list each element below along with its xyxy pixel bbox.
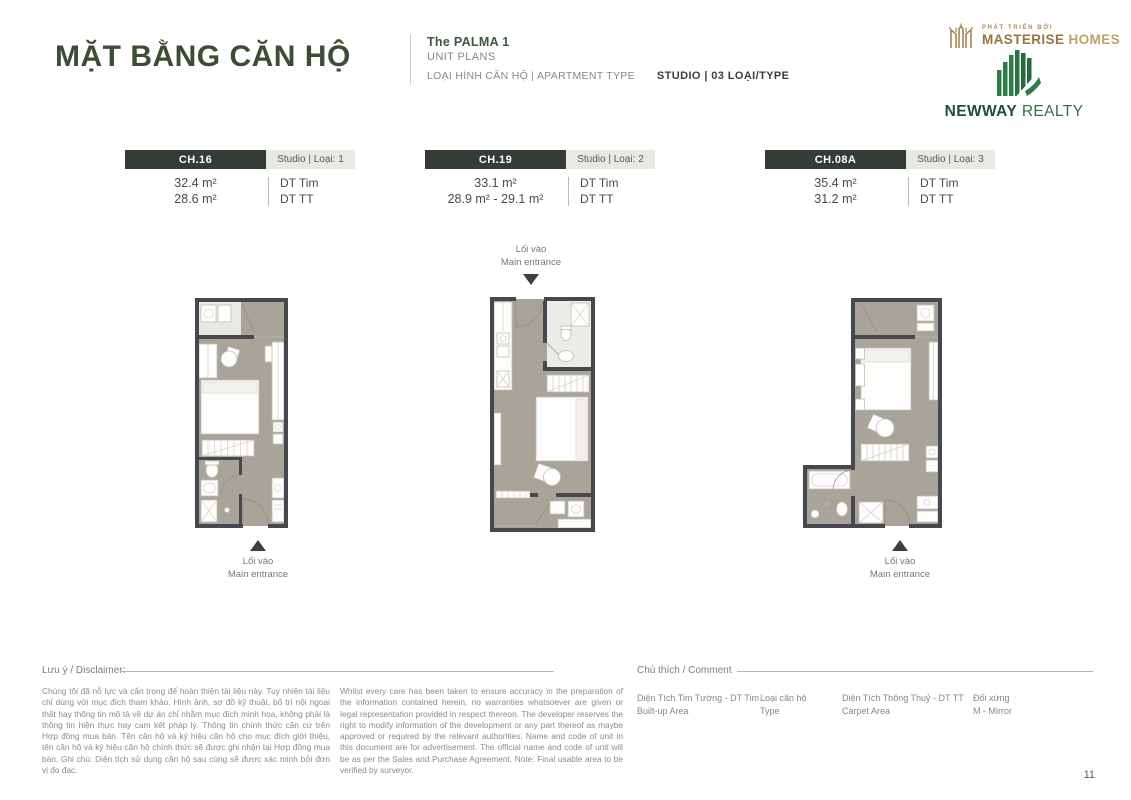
- area-tim-value: 35.4 m²: [765, 175, 906, 191]
- unit-type-ch16: Studio | Loại: 1: [266, 150, 355, 169]
- legend-line2: M - Mirror: [973, 705, 1012, 718]
- unit-code-ch19: CH.19: [425, 150, 566, 169]
- disclaimer-label: Lưu ý / Disclaimer:: [42, 665, 125, 676]
- area-tt-value: 31.2 m²: [765, 191, 906, 207]
- legend-line1: Diện Tích Tim Tường - DT Tim: [637, 692, 759, 705]
- legend-line1: Diện Tích Thông Thuỷ - DT TT: [842, 692, 964, 705]
- newway-logo: NEWWAY REALTY: [940, 50, 1088, 121]
- project-block: The PALMA 1 UNIT PLANS LOẠI HÌNH CĂN HỘ …: [427, 35, 789, 84]
- legend-item-built-up: Diện Tích Tim Tường - DT Tim Built-up Ar…: [637, 692, 759, 718]
- page-title: MẶT BẰNG CĂN HỘ: [55, 40, 351, 74]
- legend-line2: Carpet Area: [842, 705, 964, 718]
- legend-rule: [737, 671, 1093, 672]
- entrance-ch19: Lối vào Main entrance: [491, 243, 571, 285]
- entrance-arrow-icon: [523, 274, 539, 285]
- unit-dt-labels-ch19: DT Tim DT TT: [580, 175, 618, 207]
- legend-label: Chú thích / Comment: [637, 665, 731, 676]
- unit-code-ch16: CH.16: [125, 150, 266, 169]
- dt-tt-label: DT TT: [580, 191, 618, 207]
- dt-tim-label: DT Tim: [280, 175, 318, 191]
- legend-line1: Đối xứng: [973, 692, 1012, 705]
- entrance-label-en: Main entrance: [218, 568, 298, 581]
- floor-plan-ch19: [490, 297, 595, 532]
- legend-item-carpet: Diện Tích Thông Thuỷ - DT TT Carpet Area: [842, 692, 964, 718]
- newway-logo-icon: [983, 50, 1045, 100]
- area-tim-value: 32.4 m²: [125, 175, 266, 191]
- masterise-tagline: PHÁT TRIỂN BỞI: [982, 25, 1120, 31]
- entrance-label-vi: Lối vào: [491, 243, 571, 256]
- entrance-label-en: Main entrance: [491, 256, 571, 269]
- disclaimer-text-vi: Chúng tôi đã nỗ lực và cẩn trọng để hoàn…: [42, 686, 330, 776]
- legend-line2: Built-up Area: [637, 705, 759, 718]
- dt-tt-label: DT TT: [280, 191, 318, 207]
- newway-suffix: REALTY: [1022, 103, 1084, 120]
- unit-type-ch19: Studio | Loại: 2: [566, 150, 655, 169]
- entrance-arrow-icon: [892, 540, 908, 551]
- unit-type-ch08a: Studio | Loại: 3: [906, 150, 995, 169]
- legend-item-mirror: Đối xứng M - Mirror: [973, 692, 1012, 718]
- disclaimer-text-en: Whilst every care has been taken to ensu…: [340, 686, 623, 776]
- unit-dt-labels-ch08a: DT Tim DT TT: [920, 175, 958, 207]
- dt-tim-label: DT Tim: [920, 175, 958, 191]
- newway-name: NEWWAY: [945, 103, 1017, 120]
- entrance-label-vi: Lối vào: [218, 555, 298, 568]
- masterise-suffix: HOMES: [1069, 32, 1121, 47]
- entrance-label-vi: Lối vào: [860, 555, 940, 568]
- floor-plan-ch16: [195, 298, 288, 528]
- area-divider: [568, 177, 569, 206]
- project-subtitle: UNIT PLANS: [427, 51, 789, 63]
- masterise-name: MASTERISE: [982, 32, 1064, 47]
- entrance-arrow-icon: [250, 540, 266, 551]
- unit-code-ch08a: CH.08A: [765, 150, 906, 169]
- masterise-logo: PHÁT TRIỂN BỞI MASTERISE HOMES: [948, 23, 1120, 49]
- project-name: The PALMA 1: [427, 35, 789, 49]
- unit-dt-labels-ch16: DT Tim DT TT: [280, 175, 318, 207]
- legend-item-type: Loại căn hộ Type: [760, 692, 807, 718]
- legend-line1: Loại căn hộ: [760, 692, 807, 705]
- legend-line2: Type: [760, 705, 807, 718]
- entrance-label-en: Main entrance: [860, 568, 940, 581]
- header-divider: [410, 34, 411, 84]
- masterise-logo-icon: [948, 23, 974, 49]
- unit-areas-ch16: 32.4 m² 28.6 m²: [125, 175, 266, 207]
- unit-areas-ch19: 33.1 m² 28.9 m² - 29.1 m²: [425, 175, 566, 207]
- area-divider: [268, 177, 269, 206]
- page-number: 11: [1065, 769, 1095, 781]
- entrance-ch16: Lối vào Main entrance: [218, 540, 298, 581]
- dt-tim-label: DT Tim: [580, 175, 618, 191]
- area-tt-value: 28.6 m²: [125, 191, 266, 207]
- dt-tt-label: DT TT: [920, 191, 958, 207]
- floor-plan-ch08a: [803, 298, 942, 528]
- entrance-ch08a: Lối vào Main entrance: [860, 540, 940, 581]
- unit-areas-ch08a: 35.4 m² 31.2 m²: [765, 175, 906, 207]
- disclaimer-rule: [120, 671, 554, 672]
- area-divider: [908, 177, 909, 206]
- area-tim-value: 33.1 m²: [425, 175, 566, 191]
- apartment-type-label: LOẠI HÌNH CĂN HỘ | APARTMENT TYPE: [427, 70, 635, 82]
- apartment-type-value: STUDIO | 03 LOẠI/TYPE: [657, 70, 790, 82]
- area-tt-value: 28.9 m² - 29.1 m²: [425, 191, 566, 207]
